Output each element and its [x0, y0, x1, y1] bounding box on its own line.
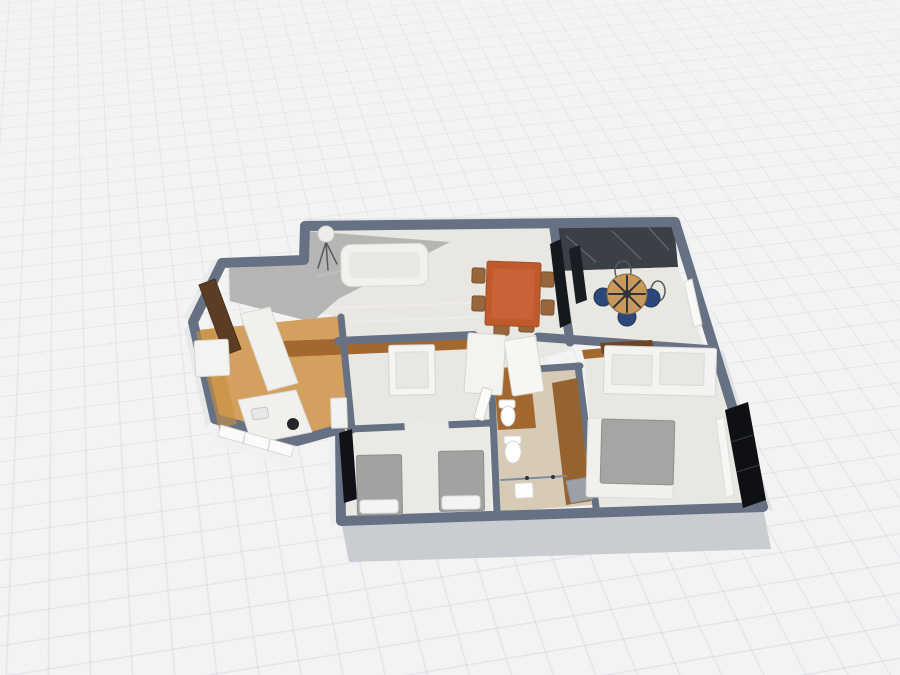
- shower-knob-1: [525, 476, 529, 480]
- bedroom2-bed-blanket: [600, 419, 675, 485]
- sofa-seat: [349, 251, 420, 278]
- kitchen-sink[interactable]: [251, 407, 268, 420]
- round-table-hub: [623, 290, 631, 298]
- kitchen-fridge[interactable]: [194, 339, 230, 377]
- open-door-1[interactable]: [464, 333, 506, 396]
- dining-table-top: [491, 268, 535, 319]
- dining-chair-4[interactable]: [541, 300, 555, 315]
- kitchen-cooktop[interactable]: [287, 418, 299, 430]
- floorplan-svg[interactable]: [0, 0, 900, 675]
- bedroom1-bed-1-pillow: [360, 500, 398, 514]
- bedroom1-bed-2-pillow: [442, 496, 480, 510]
- floor-lamp-shade[interactable]: [318, 226, 334, 242]
- floorplan-viewport[interactable]: [0, 0, 900, 675]
- bathroom-sink[interactable]: [515, 483, 534, 499]
- bedroom2-wardrobe-door-1: [612, 354, 653, 385]
- corridor-cabinet[interactable]: [330, 398, 347, 429]
- bedroom2-wardrobe-door-2: [660, 352, 705, 385]
- dining-chair-2[interactable]: [472, 296, 486, 311]
- dining-chair-1[interactable]: [472, 268, 486, 283]
- shower-knob-2: [551, 475, 555, 479]
- doorway-bedroom1: [404, 417, 449, 432]
- dining-chair-3[interactable]: [541, 272, 555, 287]
- corridor-closet-inner: [396, 352, 429, 389]
- toilet-2-bowl[interactable]: [505, 441, 521, 463]
- toilet-1-bowl[interactable]: [501, 406, 515, 426]
